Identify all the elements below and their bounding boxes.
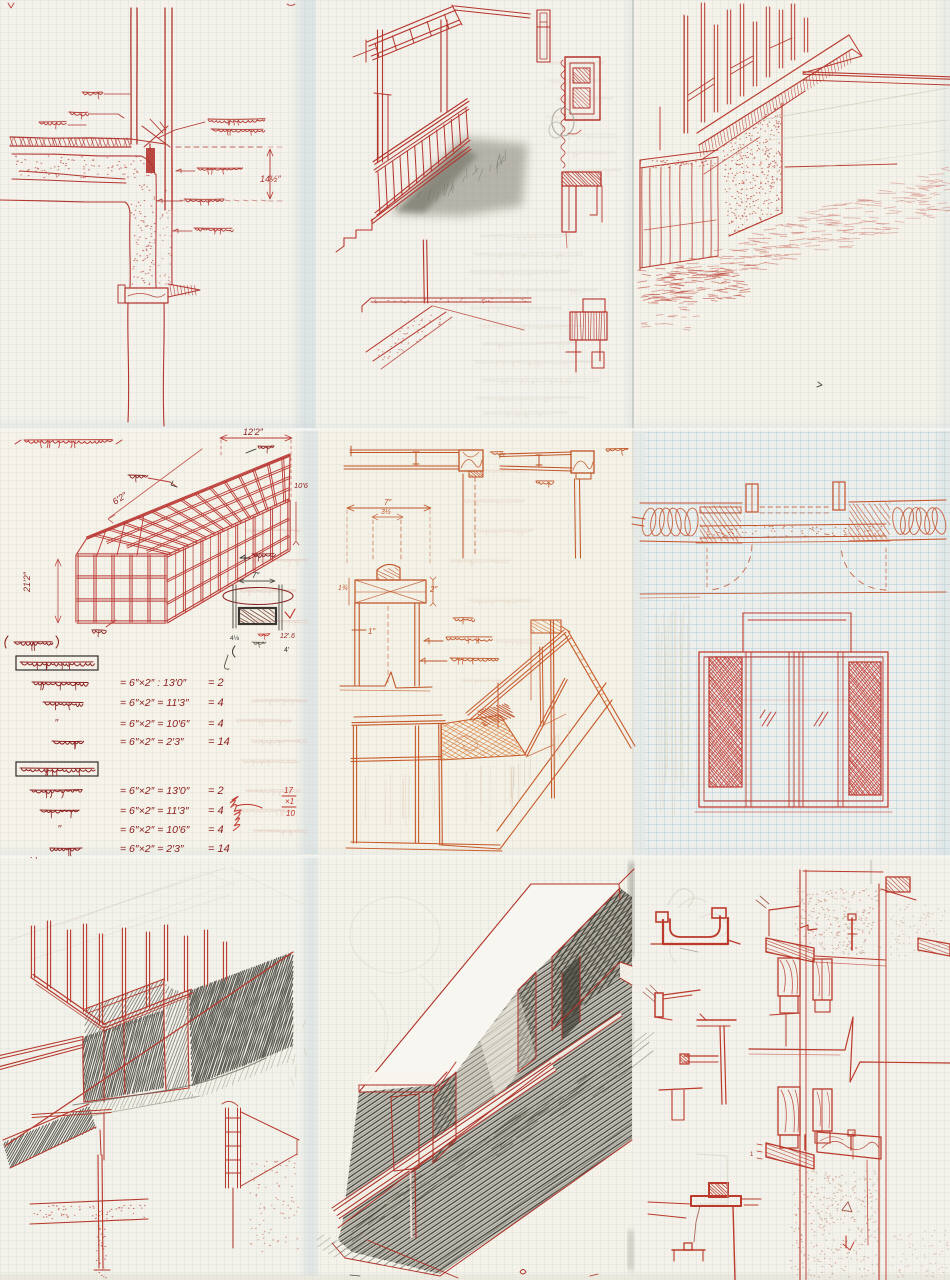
- svg-text:7″: 7″: [384, 498, 392, 507]
- svg-text:4′: 4′: [284, 647, 290, 654]
- svg-text:= 14: = 14: [208, 736, 230, 748]
- svg-text:2″: 2″: [429, 585, 438, 594]
- svg-text:= 6″×2″ = 10′6″: = 6″×2″ = 10′6″: [120, 824, 191, 836]
- svg-text:1¾: 1¾: [338, 585, 348, 592]
- svg-text:7″: 7″: [252, 571, 260, 580]
- svg-text:= 6″×2″ = 11′3″: = 6″×2″ = 11′3″: [120, 697, 190, 709]
- svg-text:= 4: = 4: [208, 697, 224, 709]
- svg-text:= 4: = 4: [208, 718, 224, 730]
- svg-text:′′: ′′: [58, 824, 62, 835]
- svg-text:= 6″×2″ = 11′3″: = 6″×2″ = 11′3″: [120, 805, 190, 817]
- svg-text:. ,: . ,: [30, 850, 38, 860]
- svg-text:17: 17: [284, 786, 293, 795]
- svg-text:1″: 1″: [368, 627, 376, 636]
- svg-text:= 2: = 2: [208, 785, 224, 797]
- svg-text:= 6″×2″ = 10′6″: = 6″×2″ = 10′6″: [120, 718, 191, 730]
- svg-text:10: 10: [286, 809, 295, 818]
- svg-text:14½″: 14½″: [260, 174, 282, 184]
- svg-text:4⅛: 4⅛: [230, 635, 240, 642]
- svg-text:= 4: = 4: [208, 824, 224, 836]
- svg-text:= 14: = 14: [208, 843, 230, 855]
- svg-text:′′: ′′: [55, 718, 59, 729]
- svg-text:10′6: 10′6: [294, 481, 309, 490]
- svg-text:= 6″×2″ = 2′3″: = 6″×2″ = 2′3″: [120, 736, 185, 748]
- svg-text:= 2: = 2: [208, 677, 224, 689]
- svg-text:= 6″×2″ = 2′3″: = 6″×2″ = 2′3″: [120, 843, 185, 855]
- svg-text:3½: 3½: [381, 508, 391, 516]
- svg-text:= 6″×2″ : 13′0″: = 6″×2″ : 13′0″: [120, 677, 188, 689]
- svg-text:×1: ×1: [285, 797, 294, 806]
- svg-text:= 4: = 4: [208, 805, 224, 817]
- svg-text:= 6″×2″ = 13′0″: = 6″×2″ = 13′0″: [120, 785, 191, 797]
- svg-text:21′2″: 21′2″: [22, 571, 32, 593]
- svg-text:12′2″: 12′2″: [243, 427, 264, 437]
- svg-text:12′.6: 12′.6: [280, 633, 295, 640]
